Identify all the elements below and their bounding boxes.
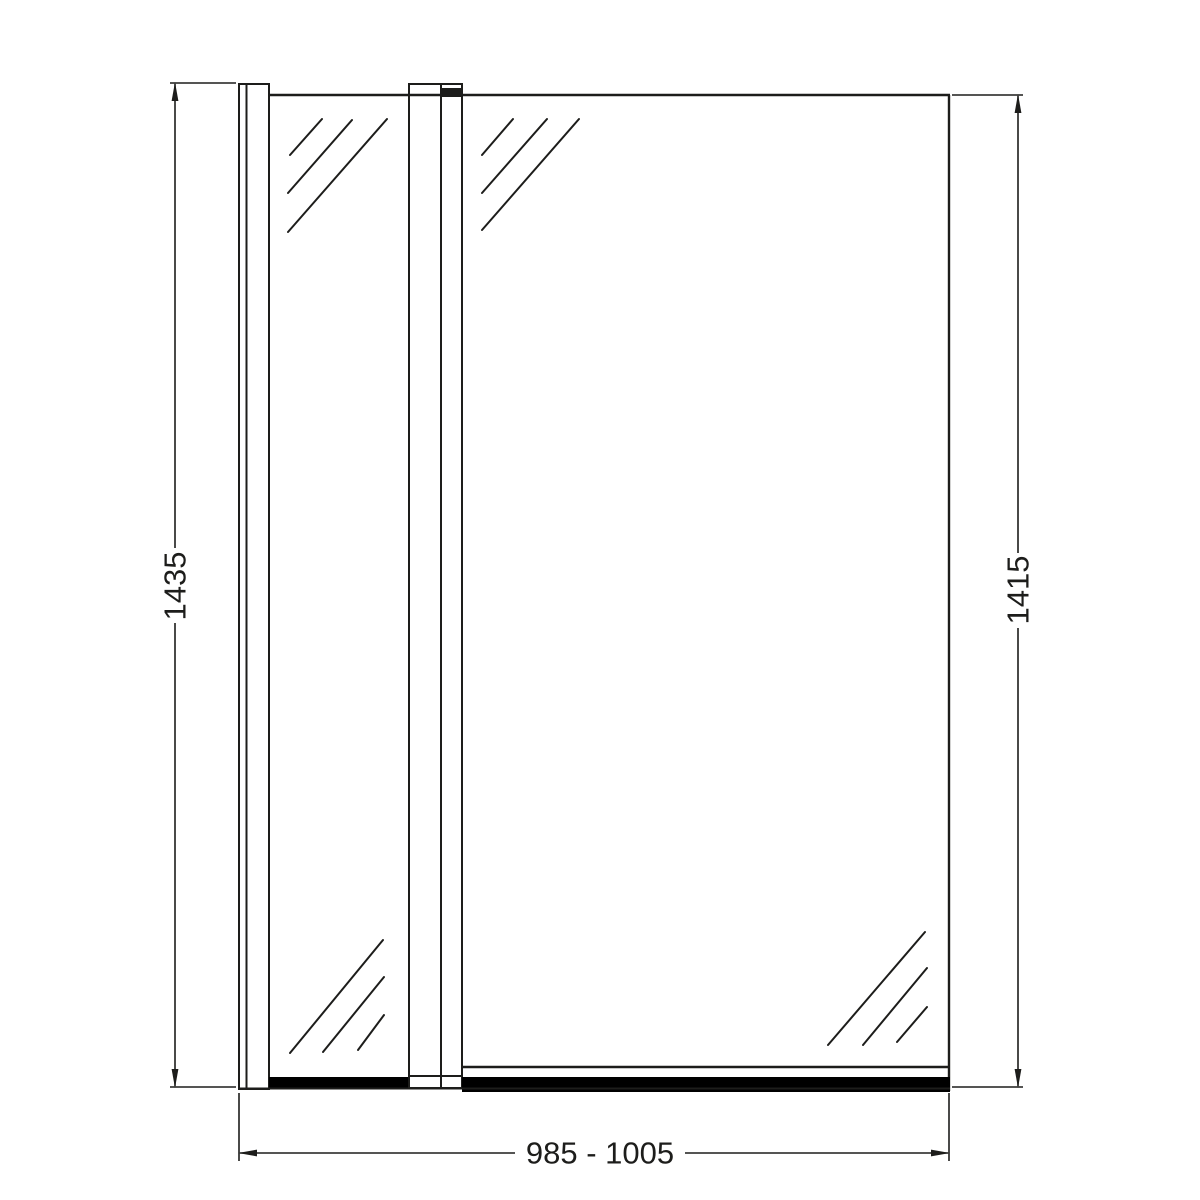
hatch-line (482, 119, 513, 155)
arrow-down-icon (1015, 1069, 1022, 1088)
hatch-line (290, 119, 322, 155)
right-height-dimension: 1415 (952, 94, 1036, 1088)
glass-reflection-hatch-top-right (482, 119, 579, 230)
hatch-line (897, 1007, 927, 1042)
main-glass-panel (462, 95, 950, 1092)
arrow-up-icon (172, 82, 179, 101)
wall-profile-outline (239, 84, 269, 1089)
arrow-left-icon (238, 1150, 257, 1157)
hinge-post-outline (409, 84, 462, 1088)
fixed-panel-bottom-seal (269, 1077, 408, 1089)
glass-reflection-hatch-bottom-left (290, 940, 384, 1053)
bath-screen-technical-drawing: 1435 1415 (0, 0, 1200, 1200)
hinge-post (409, 84, 462, 1088)
arrow-right-icon (931, 1150, 950, 1157)
hatch-line (482, 119, 579, 230)
hatch-line (863, 968, 927, 1045)
hinge-bracket-top (442, 88, 462, 97)
main-panel-bottom-seal (462, 1077, 950, 1092)
left-dimension-label: 1435 (158, 552, 193, 621)
arrow-up-icon (1015, 94, 1022, 113)
arrow-down-icon (172, 1069, 179, 1088)
fixed-glass-panel (269, 119, 408, 1089)
glass-reflection-hatch-top-left (288, 119, 387, 232)
technical-drawing-canvas: 1435 1415 (0, 0, 1200, 1200)
bottom-dimension-label: 985 - 1005 (526, 1136, 674, 1171)
hatch-line (358, 1015, 384, 1050)
right-dimension-label: 1415 (1001, 556, 1036, 625)
hatch-line (323, 977, 384, 1052)
hatch-line (288, 120, 352, 193)
hatch-line (482, 119, 547, 193)
left-height-dimension: 1435 (158, 82, 237, 1088)
bottom-width-dimension: 985 - 1005 (238, 1093, 950, 1171)
glass-reflection-hatch-bottom-right (828, 932, 927, 1045)
wall-profile (239, 84, 269, 1089)
